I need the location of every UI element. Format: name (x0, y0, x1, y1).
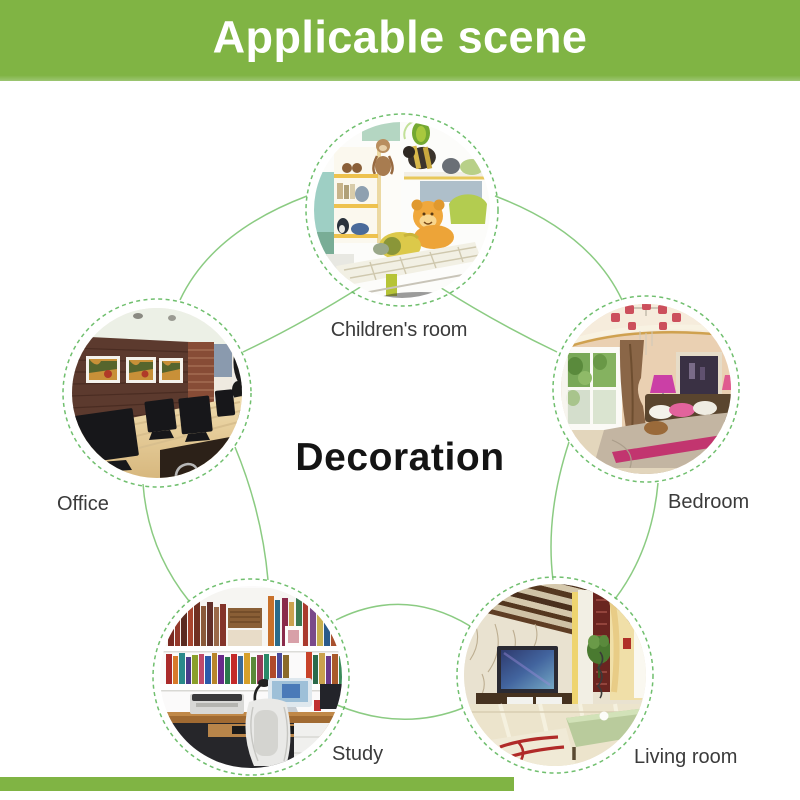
svg-text:Office: Office (57, 493, 109, 515)
svg-text:Bedroom: Bedroom (668, 491, 749, 513)
svg-text:Applicable scene: Applicable scene (213, 12, 588, 63)
svg-text:Decoration: Decoration (295, 436, 504, 479)
svg-text:Children's room: Children's room (331, 319, 467, 341)
svg-text:Study: Study (332, 743, 383, 765)
svg-text:Living room: Living room (634, 746, 737, 768)
